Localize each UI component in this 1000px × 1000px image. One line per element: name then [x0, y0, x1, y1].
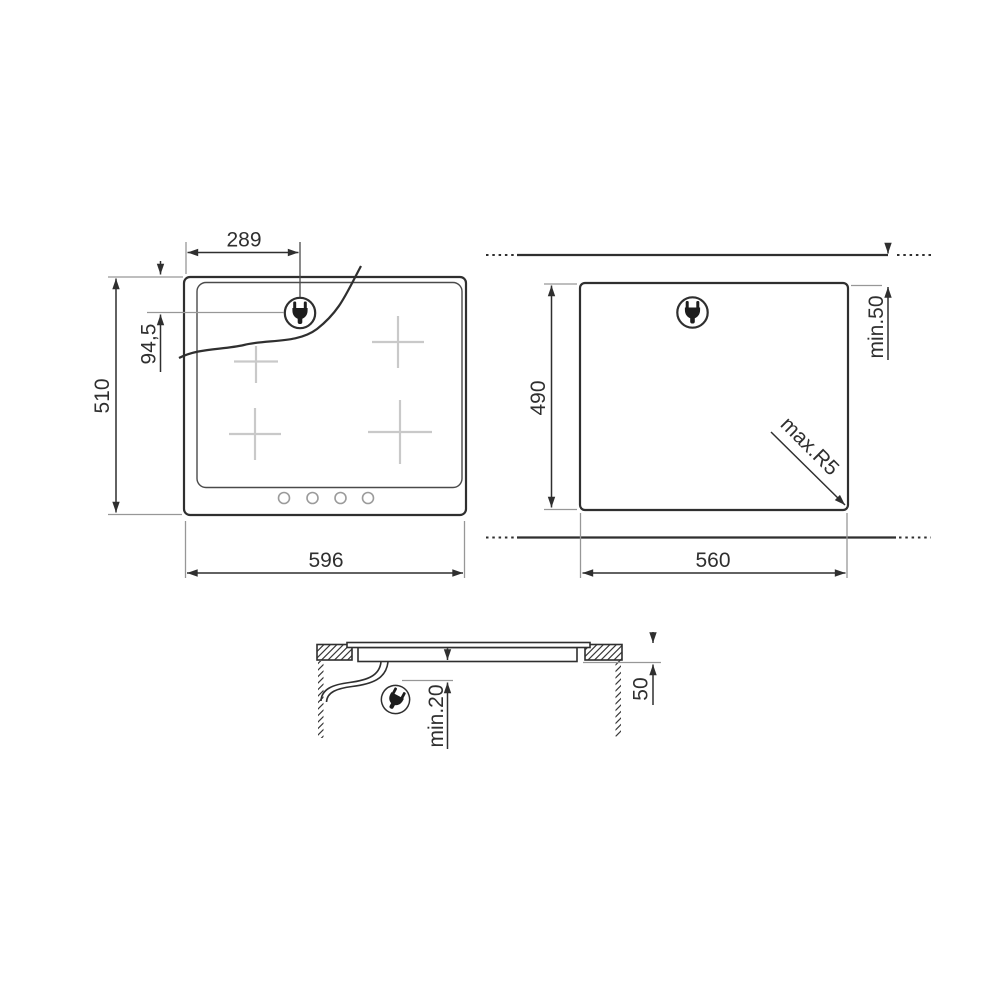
diagram-canvas: 289 94,5 510 596: [0, 0, 1000, 1000]
control-dot: [335, 493, 346, 504]
dimension-cutout-depth: 490: [527, 284, 577, 510]
dimension-label: 94,5: [138, 324, 161, 365]
installation-drawing: 289 94,5 510 596: [0, 0, 1000, 1000]
dimension-hob-width: 596: [186, 521, 465, 578]
control-dot: [307, 493, 318, 504]
worktop-section-view: min.20 50: [317, 632, 661, 749]
dimension-label: 490: [527, 380, 550, 415]
hob-glass-profile: [347, 643, 590, 648]
power-plug-icon: [677, 297, 707, 327]
control-dot: [363, 493, 374, 504]
power-plug-icon: [376, 680, 414, 718]
dimension-worktop-thickness: 50: [583, 632, 661, 705]
cabinet-wall-right: [616, 661, 622, 737]
dimension-label: min.50: [865, 295, 888, 358]
cutout-outline: [580, 283, 848, 510]
dimension-label: 289: [226, 229, 261, 252]
control-dot: [279, 493, 290, 504]
hob-body-profile: [358, 648, 577, 662]
hob-front-view: 289 94,5 510 596: [91, 229, 466, 579]
dimension-label: 510: [91, 378, 114, 413]
dimension-label: 560: [695, 549, 730, 572]
dimension-label: min.20: [425, 684, 448, 747]
dimension-hob-depth: 510: [91, 279, 182, 515]
dimension-label: 596: [308, 549, 343, 572]
dimension-cutout-width: 560: [581, 513, 848, 578]
dimension-label: 50: [630, 677, 653, 700]
power-plug-icon: [285, 298, 315, 328]
dimension-rear-clearance: min.50: [851, 243, 888, 360]
worktop-cutout-view: 490 min.50 max.R5 560: [486, 243, 931, 578]
